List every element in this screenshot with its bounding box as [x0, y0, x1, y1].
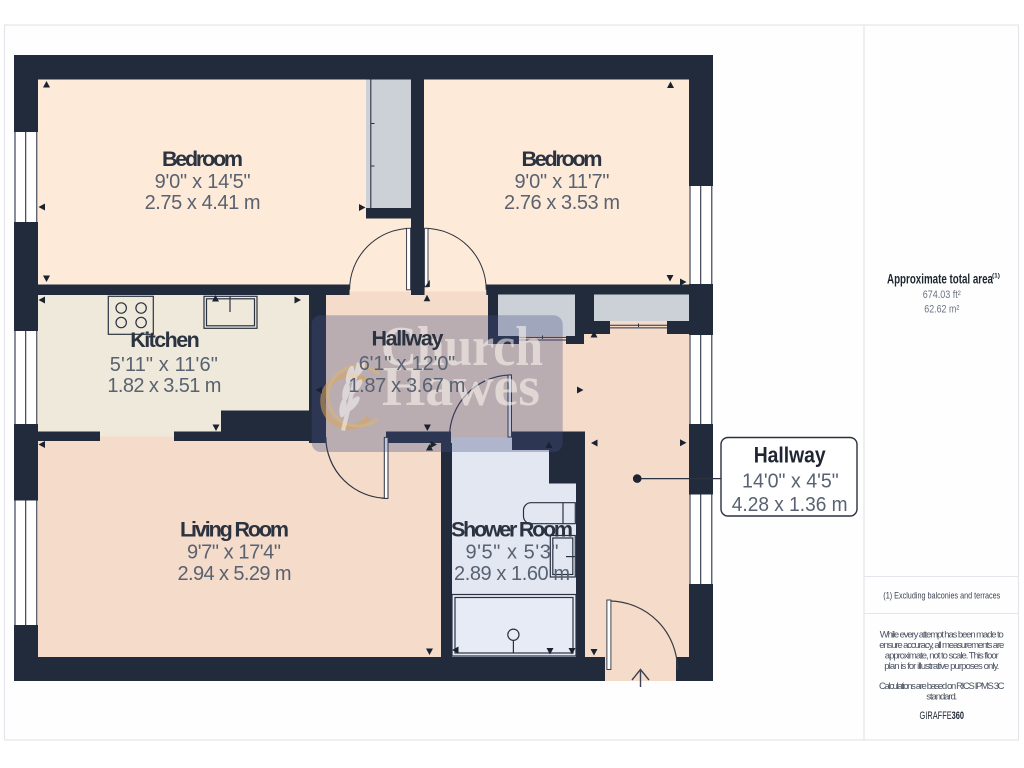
svg-text:Bedroom: Bedroom — [162, 147, 243, 171]
svg-text:5'11" x 11'6": 5'11" x 11'6" — [110, 354, 218, 376]
svg-text:9'0" x 14'5": 9'0" x 14'5" — [155, 171, 251, 193]
svg-text:9'0" x 11'7": 9'0" x 11'7" — [515, 171, 610, 193]
svg-text:6'1" x 12'0": 6'1" x 12'0" — [359, 353, 456, 375]
svg-text:2.76 x 3.53 m: 2.76 x 3.53 m — [504, 192, 620, 214]
svg-text:ensure accuracy, all measureme: ensure accuracy, all measurements are — [879, 640, 1004, 651]
svg-text:approximate, not to scale. Thi: approximate, not to scale. This floor — [885, 651, 999, 662]
svg-text:2.75 x 4.41 m: 2.75 x 4.41 m — [145, 192, 261, 214]
svg-text:62.62 m²: 62.62 m² — [924, 303, 959, 315]
svg-text:9'5" x 5'3": 9'5" x 5'3" — [466, 542, 559, 564]
svg-text:Bedroom: Bedroom — [522, 147, 603, 171]
svg-text:Hallway: Hallway — [754, 443, 827, 468]
svg-text:standard.: standard. — [926, 691, 957, 702]
svg-text:plan is for illustrative purpo: plan is for illustrative purposes only. — [884, 661, 999, 672]
svg-text:674.03 ft²: 674.03 ft² — [923, 289, 961, 301]
svg-text:2.94 x 5.29 m: 2.94 x 5.29 m — [178, 563, 292, 585]
svg-text:4.28 x 1.36 m: 4.28 x 1.36 m — [732, 494, 848, 516]
svg-text:2.89 x 1.60 m: 2.89 x 1.60 m — [454, 563, 570, 585]
svg-text:Hallway: Hallway — [372, 326, 444, 350]
svg-text:(1) Excluding balconies and te: (1) Excluding balconies and terraces — [883, 591, 1000, 602]
svg-text:Living Room: Living Room — [180, 517, 289, 541]
svg-text:1.82 x 3.51 m: 1.82 x 3.51 m — [107, 375, 221, 397]
svg-text:1.87 x 3.67 m: 1.87 x 3.67 m — [348, 375, 465, 397]
svg-text:Calculations are based on RICS: Calculations are based on RICS IPMS 3C — [879, 681, 1005, 692]
svg-text:While every attempt has been m: While every attempt has been made to — [880, 630, 1004, 641]
svg-text:(1): (1) — [992, 273, 1000, 280]
svg-text:9'7" x 17'4": 9'7" x 17'4" — [187, 542, 281, 564]
svg-text:Kitchen: Kitchen — [130, 328, 200, 352]
svg-text:GIRAFFE360: GIRAFFE360 — [920, 710, 965, 722]
svg-text:Shower Room: Shower Room — [451, 517, 573, 541]
svg-text:14'0" x 4'5": 14'0" x 4'5" — [742, 470, 839, 492]
svg-text:Approximate total area: Approximate total area — [887, 271, 993, 287]
